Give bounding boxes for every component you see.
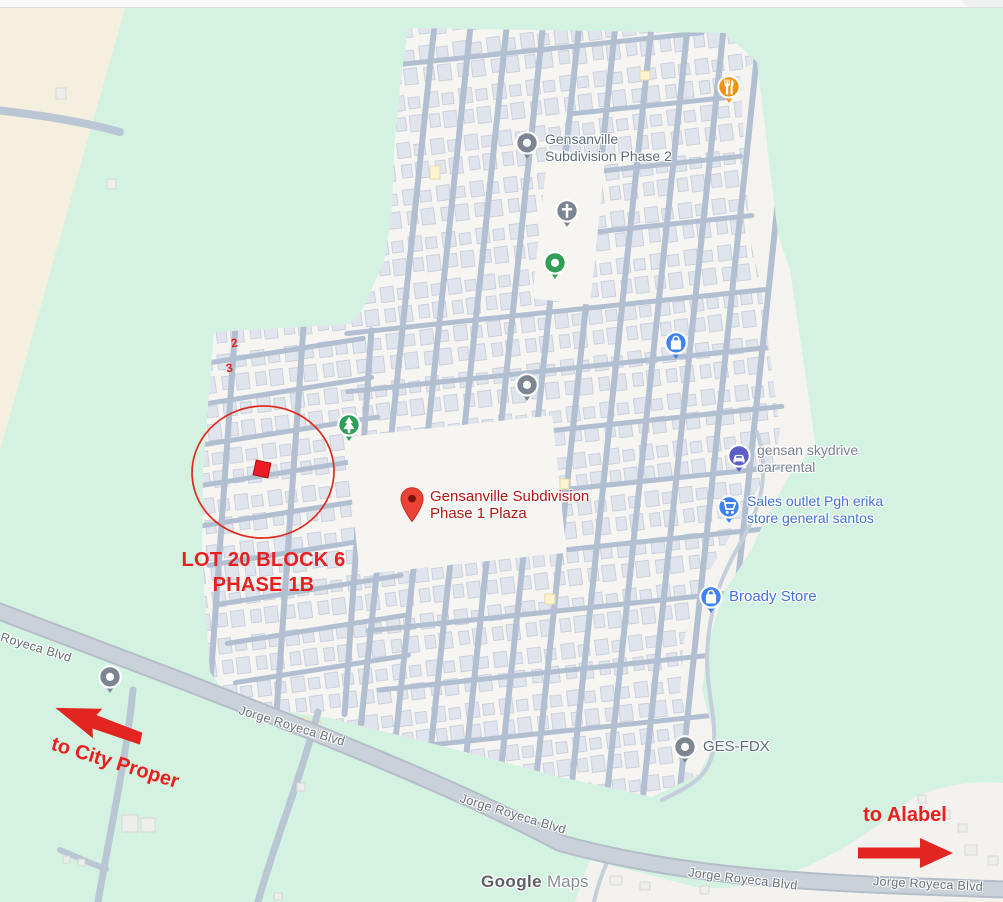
lot-annotation-line2: PHASE 1B <box>176 573 351 598</box>
google-maps-watermark: GoogleMaps <box>481 872 589 892</box>
poi-label-gensanville-phase2-top[interactable]: Gensanville Subdivision Phase 2 <box>545 131 672 164</box>
window-top-strip <box>0 0 1003 8</box>
poi-label-broady-store[interactable]: Broady Store <box>729 589 817 606</box>
cart-pin-icon[interactable] <box>716 494 742 524</box>
poi-label-sales-outlet[interactable]: Sales outlet Pgh erika store general san… <box>747 493 883 526</box>
fork-knife-icon[interactable] <box>716 74 742 104</box>
dot-pin-icon[interactable] <box>514 130 540 160</box>
poi-label-gensan-skydrive[interactable]: gensan skydrive car rental <box>757 442 858 475</box>
poi-label-phase1-plaza[interactable]: Gensanville Subdivision Phase 1 Plaza <box>430 489 589 522</box>
map-canvas[interactable]: Bogart's Delectables Gensanville Subdivi… <box>0 0 1003 902</box>
watermark-brand: Google <box>481 872 542 891</box>
dot-pin-icon[interactable] <box>672 734 698 764</box>
lot-annotation: LOT 20 BLOCK 6 PHASE 1B <box>176 548 351 598</box>
lot-marker-square <box>253 460 271 478</box>
dot-pin-icon[interactable] <box>514 372 540 402</box>
poi-label-ges-fdx[interactable]: GES-FDX <box>703 739 770 756</box>
car-pin-icon[interactable] <box>726 443 752 473</box>
dot-pin-icon[interactable] <box>97 664 123 694</box>
to-alabel-label: to Alabel <box>845 804 965 827</box>
window-top-notch <box>963 0 1003 7</box>
bag-pin-icon[interactable] <box>663 330 689 360</box>
dot-pin-icon[interactable] <box>542 250 568 280</box>
tree-pin-icon[interactable] <box>336 412 362 442</box>
bag-pin-icon[interactable] <box>698 584 724 614</box>
lot-annotation-line1: LOT 20 BLOCK 6 <box>176 548 351 573</box>
watermark-product: Maps <box>547 872 589 891</box>
cross-pin-icon[interactable] <box>554 198 580 228</box>
red-marker-icon[interactable] <box>399 486 425 524</box>
